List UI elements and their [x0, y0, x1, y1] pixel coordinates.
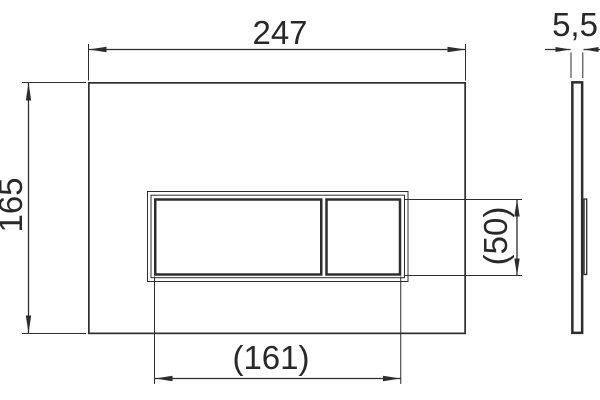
- arrowhead-left: [556, 47, 571, 52]
- side-button-profile: [584, 199, 587, 275]
- dim-thickness: [545, 47, 600, 78]
- dim-label-overall-height: 165: [0, 125, 28, 285]
- button-recess-outer: [148, 192, 409, 282]
- arrowhead-top: [26, 83, 31, 101]
- dim-label-thickness: 5,5: [495, 8, 600, 42]
- arrowhead-left: [155, 376, 173, 381]
- plate-side-outline: [572, 82, 582, 333]
- arrowhead-right: [383, 376, 401, 381]
- arrowhead-right: [448, 47, 466, 52]
- dim-label-overall-width: 247: [200, 16, 360, 50]
- drawing-canvas: 247 5,5 165 (50) (161): [0, 0, 600, 400]
- dim-label-button-panel-height: (50): [479, 156, 513, 316]
- arrowhead-bottom: [514, 259, 519, 276]
- flush-button-small: [327, 200, 401, 275]
- side-view: [572, 82, 586, 333]
- plate-front-outline: [89, 83, 465, 334]
- front-view: [89, 83, 465, 334]
- flush-button-large: [155, 200, 321, 275]
- arrowhead-right: [584, 47, 599, 52]
- dim-label-button-panel-width: (161): [191, 341, 351, 375]
- dim-overall-height: [22, 83, 86, 334]
- arrowhead-bottom: [26, 316, 31, 334]
- arrowhead-top: [514, 200, 519, 217]
- arrowhead-left: [89, 47, 107, 52]
- button-recess-inner: [151, 195, 405, 278]
